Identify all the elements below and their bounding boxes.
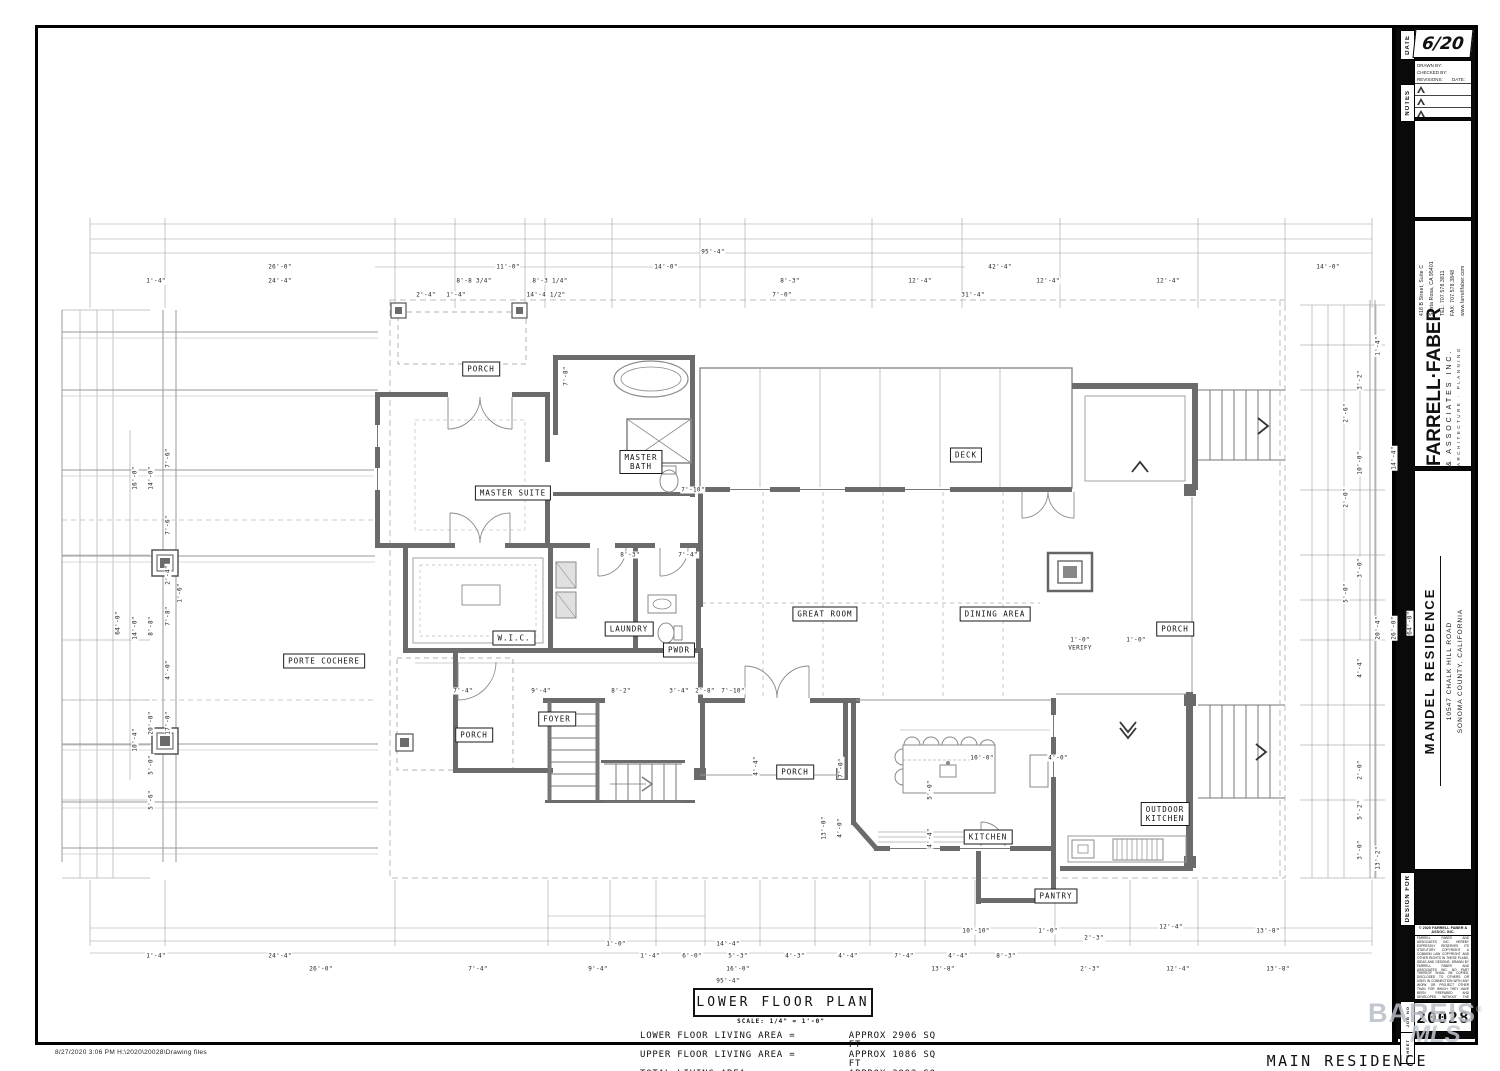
file-path-stamp: 8/27/2020 3:06 PM H:\2020\20028\Drawing …: [55, 1049, 207, 1056]
dimension-label: 4'-4": [947, 953, 969, 960]
drawing-sheet: PORCHMASTER SUITEMASTERBATHDECKGREAT ROO…: [0, 0, 1500, 1071]
dimension-label: 12'-4": [1035, 278, 1060, 285]
dimension-label: 4'-4": [1357, 657, 1364, 679]
dimension-label: 10'-10": [961, 928, 990, 935]
dimension-label: 1'-4": [145, 278, 167, 285]
job-number: 20028: [1414, 1002, 1472, 1032]
dimension-label: 1'-4": [445, 292, 467, 299]
dimension-label: 2'-8": [694, 688, 716, 695]
dimension-label: 12'-4": [1165, 966, 1190, 973]
revision-triangle-icon: [1417, 86, 1425, 93]
project-box: MANDEL RESIDENCE 10547 CHALK HILL ROAD S…: [1414, 470, 1472, 870]
dimension-label: 14'-0": [132, 615, 139, 640]
dimension-label: 7'-0": [771, 292, 793, 299]
area-row-label: LOWER FLOOR LIVING AREA =: [640, 1032, 849, 1051]
revision-row: [1415, 95, 1471, 107]
notes-tab: NOTES: [1400, 84, 1415, 122]
revision-row: [1415, 83, 1471, 95]
dimension-label: 20'-4": [1375, 615, 1382, 640]
dimension-label: 1'-0": [1125, 637, 1147, 644]
project-name: MANDEL RESIDENCE: [1422, 588, 1437, 755]
dimension-label: 7'-10": [720, 688, 745, 695]
dimension-label: 2'-4": [415, 292, 437, 299]
dimension-label: 13'-2": [1375, 845, 1382, 870]
room-label-foyer: FOYER: [538, 712, 576, 727]
dimension-label: 8'-8": [148, 615, 155, 637]
area-row: UPPER FLOOR LIVING AREA =APPROX 1086 SQ …: [640, 1051, 950, 1070]
dimension-label: 14'-0": [1315, 264, 1340, 271]
room-label-great-room: GREAT ROOM: [792, 607, 857, 622]
dimension-label: 4'-4": [837, 953, 859, 960]
dimension-label: 8'-3": [779, 278, 801, 285]
dimension-label: 7'-4": [677, 552, 699, 559]
room-label-pantry: PANTRY: [1034, 889, 1077, 904]
dimension-label: 12'-4": [1155, 278, 1180, 285]
dimension-label: 24'-4": [267, 278, 292, 285]
dimension-label: 8'-2": [610, 688, 632, 695]
dimension-label: 7'-6": [165, 447, 172, 469]
dimension-label: 13'-8": [1255, 928, 1280, 935]
dimension-label: 1'-0": [1037, 928, 1059, 935]
copyright-header: © 2020 FARRELL FABER & ASSOC. INC.: [1415, 925, 1471, 936]
dimension-label: 8'-3": [995, 953, 1017, 960]
dimension-label: 5'-6": [148, 789, 155, 811]
dimension-label: 3'-0": [1357, 839, 1364, 861]
dimension-label: 17'-0": [165, 710, 172, 735]
dimension-label: 5'-3": [727, 953, 749, 960]
dimension-label: 4'-3": [784, 953, 806, 960]
dimension-label: 1'-4": [145, 953, 167, 960]
dimension-label: 16'-0": [725, 966, 750, 973]
room-label-outdoor: OUTDOORKITCHEN: [1141, 802, 1190, 826]
room-label-pwdr: PWDR: [663, 643, 695, 658]
area-row: LOWER FLOOR LIVING AREA =APPROX 2906 SQ …: [640, 1032, 950, 1051]
dimension-label: 64'-0": [115, 610, 122, 635]
dimension-label: 1'-6": [177, 582, 184, 604]
dimension-label: 13'-8": [930, 966, 955, 973]
checked-by-label: CHECKED BY:: [1417, 70, 1447, 75]
firm-tel: TEL: 707.578.3811: [1438, 222, 1448, 316]
dimension-label: 8'-3 1/4": [531, 278, 568, 285]
dimension-label: 1'-4": [1375, 335, 1382, 357]
room-label-master: MASTERBATH: [619, 450, 662, 474]
dimension-label: 10'-0": [969, 755, 994, 762]
drawn-by-label: DRAWN BY:: [1417, 63, 1442, 68]
design-for-tab: DESIGN FOR: [1400, 872, 1415, 926]
dimension-label: 2'-4": [165, 564, 172, 586]
dimension-label: 14'-4 1/2": [525, 292, 566, 299]
firm-address-2: Santa Rosa, CA 95401: [1427, 222, 1437, 316]
dimension-label: VERIFY: [1067, 645, 1092, 652]
dimension-label: 4'-4": [753, 755, 760, 777]
firm-box: FARRELL·FABER & ASSOCIATES INC. ARCHITEC…: [1414, 220, 1472, 467]
dimension-label: 2'-3": [1083, 935, 1105, 942]
dimension-label: 7'-8": [563, 365, 570, 387]
empty-box: [1414, 120, 1472, 218]
firm-web: www.farrellfaber.com: [1458, 222, 1468, 316]
revision-row: [1415, 107, 1471, 119]
room-label-dining-area: DINING AREA: [960, 607, 1031, 622]
dimension-label: 6'-0": [681, 953, 703, 960]
copyright-box: © 2020 FARRELL FABER & ASSOC. INC. FARRE…: [1414, 924, 1472, 1000]
room-label-porch: PORCH: [462, 362, 500, 377]
plan-scale-note: SCALE: 1/4" = 1'-0": [693, 1018, 869, 1025]
dimension-label: 2'-3": [1079, 966, 1101, 973]
project-address-1: 10547 CHALK HILL ROAD: [1446, 622, 1453, 720]
dimension-label: 9'-4": [530, 688, 552, 695]
dimension-label: 8'-8 3/4": [455, 278, 492, 285]
job-no-tab: JOB NO: [1400, 1001, 1415, 1033]
dimension-label: 31'-4": [960, 292, 985, 299]
area-summary: LOWER FLOOR LIVING AREA =APPROX 2906 SQ …: [640, 1032, 950, 1071]
dimension-label: 64'-0": [1407, 610, 1414, 635]
dimension-label: 11'-0": [495, 264, 520, 271]
dimension-label: 16'-0": [132, 465, 139, 490]
dimension-label: 1'-0": [1069, 637, 1091, 644]
dimension-label: 7'-8": [165, 605, 172, 627]
room-label-master-suite: MASTER SUITE: [475, 486, 551, 501]
dimension-label: 95'-4": [715, 978, 740, 985]
dimension-label: 3'-0": [1357, 557, 1364, 579]
room-label-deck: DECK: [950, 448, 982, 463]
area-row-value: APPROX 1086 SQ FT: [849, 1051, 950, 1070]
dimension-label: 7'-0": [838, 757, 845, 779]
dimension-label: 8'-3": [619, 552, 641, 559]
rev-date-label: DATE:: [1452, 77, 1465, 82]
dimension-label: 7'-4": [893, 953, 915, 960]
dimension-label: 4'-0": [1047, 755, 1069, 762]
room-label-porte-cochere: PORTE COCHERE: [283, 654, 365, 669]
area-row-label: UPPER FLOOR LIVING AREA =: [640, 1051, 849, 1070]
dimension-label: 2'-0": [1343, 487, 1350, 509]
firm-fax: FAX: 707.578.3848: [1448, 222, 1458, 316]
room-label-laundry: LAUNDRY: [605, 622, 654, 637]
dimension-label: 14'-0": [653, 264, 678, 271]
dimension-label: 26'-0": [308, 966, 333, 973]
sheet-border: [35, 25, 1478, 1045]
dimension-label: 20'-0": [148, 710, 155, 735]
room-label-kitchen: KITCHEN: [964, 830, 1013, 845]
dimension-label: 10'-0": [1357, 450, 1364, 475]
dimension-label: 14'-4": [715, 941, 740, 948]
dimension-label: 2'-0": [1357, 759, 1364, 781]
dimension-label: 7'-4": [467, 966, 489, 973]
dimension-label: 3'-4": [668, 688, 690, 695]
dimension-label: 12'-4": [907, 278, 932, 285]
dimension-label: 24'-4": [267, 953, 292, 960]
dimension-label: 4'-4": [927, 827, 934, 849]
dimension-label: 1'-0": [605, 941, 627, 948]
project-rule: [1440, 556, 1441, 786]
dimension-label: 12'-4": [1158, 924, 1183, 931]
dimension-label: 4'-0": [165, 659, 172, 681]
dimension-label: 1'-4": [639, 953, 661, 960]
firm-tagline: ARCHITECTURE · PLANNING: [1456, 316, 1461, 466]
dimension-label: 7'-6": [165, 514, 172, 536]
firm-assoc: & ASSOCIATES INC.: [1446, 316, 1453, 466]
main-residence-label: MAIN RESIDENCE: [1178, 1052, 1428, 1070]
dimension-label: 14'-4": [1391, 445, 1398, 470]
dimension-label: 5'-0": [1343, 582, 1350, 604]
dimension-label: 2'-6": [1343, 402, 1350, 424]
dimension-label: 9'-4": [587, 966, 609, 973]
revisions-label: REVISIONS:: [1417, 77, 1443, 82]
area-row-value: APPROX 2906 SQ FT: [849, 1032, 950, 1051]
project-address-2: SONOMA COUNTY, CALIFORNIA: [1457, 609, 1464, 734]
dimension-label: 3'-2": [1357, 369, 1364, 391]
dimension-label: 26'-0": [267, 264, 292, 271]
room-label-porch: PORCH: [776, 765, 814, 780]
room-label-porch: PORCH: [455, 728, 493, 743]
room-label-porch: PORCH: [1156, 622, 1194, 637]
dimension-label: 26'-0": [1391, 615, 1398, 640]
date-value: 6/20: [1412, 29, 1473, 58]
revision-triangle-icon: [1417, 110, 1425, 117]
dimension-label: 95'-4": [700, 249, 725, 256]
firm-name: FARRELL·FABER: [1425, 316, 1444, 466]
dimension-label: 7'-10": [680, 487, 705, 494]
revision-triangle-icon: [1417, 98, 1425, 105]
dimension-label: 42'-4": [987, 264, 1012, 271]
dimension-label: 5'-0": [927, 779, 934, 801]
dimension-label: 13'-0": [821, 815, 828, 840]
firm-address-1: 418 B Street, Suite C: [1417, 222, 1427, 316]
dimension-label: 5'-2": [1357, 799, 1364, 821]
dimension-label: 10'-4": [132, 727, 139, 752]
plan-title: LOWER FLOOR PLAN: [693, 988, 873, 1017]
dimension-label: 14'-0": [148, 465, 155, 490]
room-label-w-i-c-: W.I.C.: [492, 631, 535, 646]
dimension-label: 4'-0": [837, 817, 844, 839]
dimension-label: 5'-0": [148, 754, 155, 776]
dimension-label: 7'-4": [452, 688, 474, 695]
dimension-label: 13'-8": [1265, 966, 1290, 973]
revisions-box: DRAWN BY: CHECKED BY: REVISIONS: DATE:: [1414, 60, 1472, 118]
